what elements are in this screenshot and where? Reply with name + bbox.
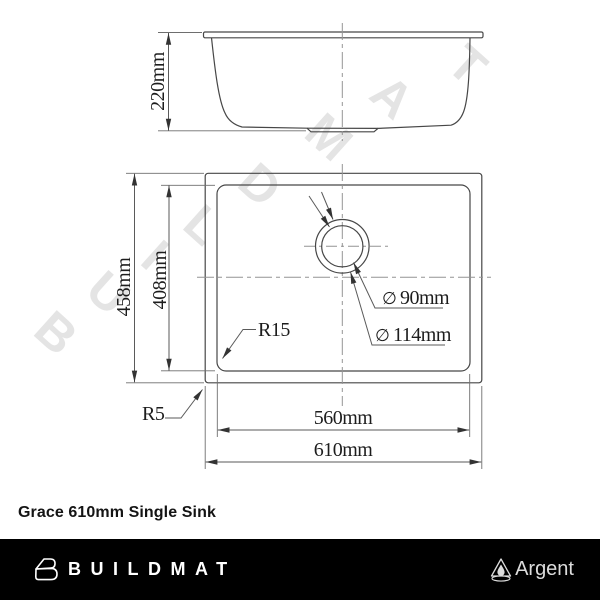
r15-leader (223, 330, 257, 359)
r5-label: R5 (142, 403, 165, 425)
sink-rim-profile (204, 32, 484, 38)
dim-610-label: 610mm (314, 439, 374, 461)
buildmat-logo: BUILDMAT (30, 556, 237, 584)
argent-icon (490, 557, 512, 583)
dia90-leader-top (309, 196, 330, 227)
sink-bowl-profile (212, 38, 471, 132)
dim-408-label: 408mm (149, 250, 171, 310)
argent-logo: Argent (490, 557, 574, 583)
sink-side-view: 220mm (147, 23, 483, 141)
dia90-label: 90mm (400, 287, 450, 309)
product-title: Grace 610mm Single Sink (18, 504, 216, 522)
dia114-leader-top (322, 192, 334, 220)
argent-wordmark: Argent (515, 558, 574, 581)
buildmat-wordmark: BUILDMAT (68, 559, 237, 580)
sink-outer-edge (205, 173, 482, 382)
dia114-label: 114mm (393, 324, 452, 346)
dia114-symbol: ∅ (375, 326, 390, 346)
footer-bar: BUILDMAT Argent (0, 539, 600, 600)
dim-220-label: 220mm (147, 51, 169, 111)
r15-label: R15 (258, 319, 290, 341)
buildmat-icon (30, 556, 60, 584)
r5-leader (165, 390, 203, 419)
dim-458-label: 458mm (113, 257, 135, 317)
sink-top-view: ∅ 90mm ∅ 114mm R15 R5 458mm 408mm 560mm … (113, 164, 491, 469)
dim-560-label: 560mm (314, 407, 374, 429)
dia90-symbol: ∅ (382, 289, 397, 309)
